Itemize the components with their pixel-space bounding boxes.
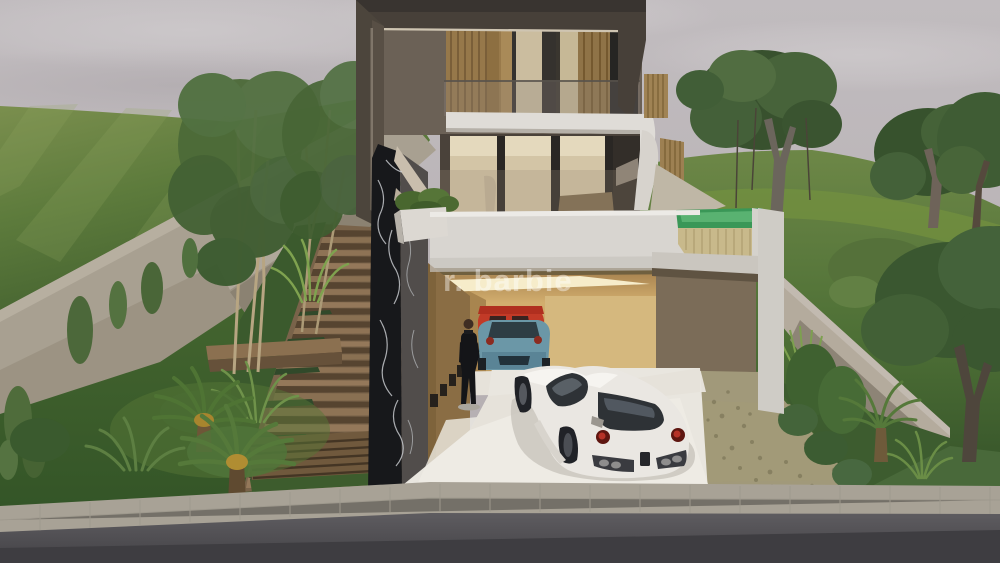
svg-text:r. barbie: r. barbie: [443, 263, 573, 298]
